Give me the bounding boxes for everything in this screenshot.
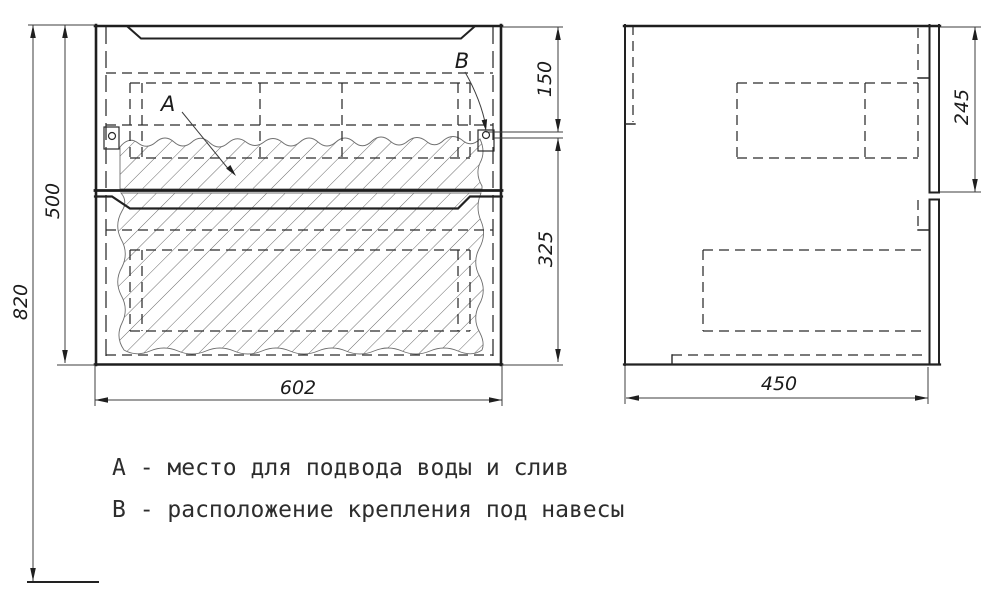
arrow-up [972, 27, 978, 40]
arrow-down [555, 119, 561, 132]
hatch-lower-section [118, 193, 484, 354]
callout-b: В [455, 49, 487, 131]
dim-820: 820 [10, 25, 98, 582]
arrow-up [30, 25, 36, 38]
callout-a-label: А [159, 92, 175, 116]
callout-b-label: В [455, 49, 469, 73]
arrow-left [95, 397, 108, 403]
dim-450: 450 [625, 365, 928, 404]
side-hidden-lines [633, 25, 926, 355]
dim-text-150: 150 [534, 61, 556, 97]
front-view [95, 25, 502, 365]
legend: А - место для подвода воды и слив В - ра… [112, 455, 624, 523]
lower-drawer-front-profile [930, 200, 940, 365]
side-view [624, 25, 940, 365]
dim-500: 500 [42, 25, 95, 365]
arrow-up [62, 25, 68, 38]
side-lower-drawer-box [703, 250, 926, 331]
leader-line [465, 72, 486, 127]
arrow-down [972, 179, 978, 192]
dim-325: 325 [502, 138, 563, 365]
arrow-down [62, 350, 68, 363]
arrow-up [555, 27, 561, 40]
bracket-hole [109, 133, 116, 140]
arrow-right [489, 397, 502, 403]
bracket-hole [483, 132, 490, 139]
arrow-down [30, 568, 36, 581]
upper-drawer-handle-recess [128, 27, 474, 39]
side-outline [624, 25, 940, 365]
side-steps [626, 78, 929, 364]
front-hatch-sections [118, 137, 484, 355]
side-upper-drawer-box [737, 83, 918, 158]
dim-text-245: 245 [951, 89, 973, 125]
drawing-page: 820 500 602 150 325 [0, 0, 1000, 592]
hatch-upper-section [120, 137, 483, 190]
dim-150: 150 [486, 27, 563, 138]
dim-text-450: 450 [761, 373, 797, 395]
dim-602: 602 [95, 366, 502, 406]
legend-line-2: В - расположение крепления под навесы [112, 497, 624, 523]
legend-line-1: А - место для подвода воды и слив [112, 455, 569, 481]
vanity-technical-drawing: 820 500 602 150 325 [0, 0, 1000, 592]
dim-text-500: 500 [42, 183, 64, 219]
dim-text-820: 820 [10, 284, 32, 320]
arrow-down [555, 349, 561, 362]
dim-text-602: 602 [280, 377, 316, 399]
arrow-up [555, 138, 561, 151]
arrow-right [915, 395, 928, 401]
dim-text-325: 325 [535, 231, 557, 267]
upper-drawer-front-profile [930, 25, 940, 193]
dim-245: 245 [940, 27, 981, 192]
arrow-left [626, 395, 639, 401]
